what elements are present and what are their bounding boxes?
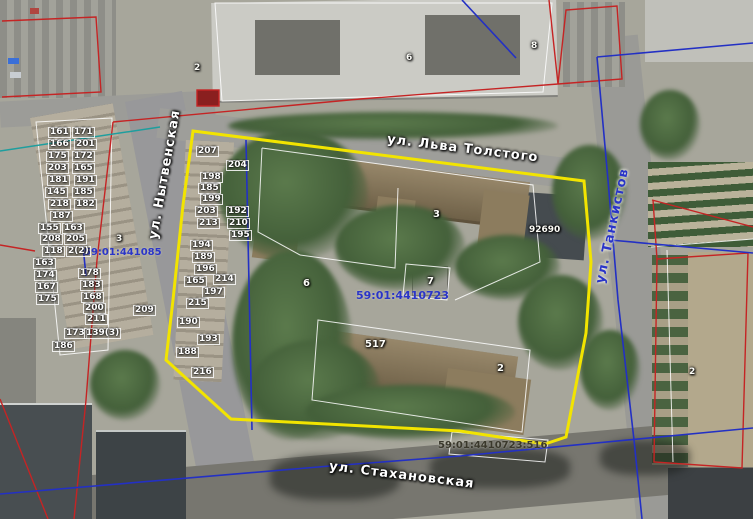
building-right-strip	[688, 252, 753, 467]
building-top-right	[563, 2, 625, 87]
trees	[640, 90, 700, 160]
bush-row-right	[652, 255, 690, 465]
building-bottom-left-2	[96, 430, 186, 519]
car	[10, 72, 21, 78]
car	[30, 8, 39, 14]
garage-block-top-left	[0, 0, 116, 98]
parcel-number-label: 163	[33, 258, 56, 269]
trees	[305, 385, 515, 440]
trees	[228, 112, 558, 140]
trees	[90, 350, 160, 420]
parcel-number-label: 167	[35, 282, 58, 293]
building-number-label: 2	[194, 64, 200, 73]
trees	[335, 205, 465, 290]
building-top-courtyard	[255, 20, 340, 75]
car	[8, 58, 19, 64]
building-bottom-left	[0, 403, 92, 519]
parcel-number-label: 175	[36, 294, 59, 305]
trees	[552, 145, 627, 240]
trees	[580, 330, 640, 410]
tree-shadow	[600, 440, 690, 475]
tree-shadow	[270, 455, 400, 500]
building-west-edge	[0, 318, 36, 410]
building-bottom-right	[668, 468, 753, 519]
cadastral-map-viewport[interactable]: ул. Льва Толстогоул. Стахановскаяул. Ныт…	[0, 0, 753, 519]
hedge-rows-right	[648, 162, 753, 247]
parcel-number-label: 174	[34, 270, 57, 281]
tree-shadow	[430, 448, 570, 488]
building-top-courtyard	[425, 15, 520, 75]
building-top-far-right	[645, 0, 753, 62]
